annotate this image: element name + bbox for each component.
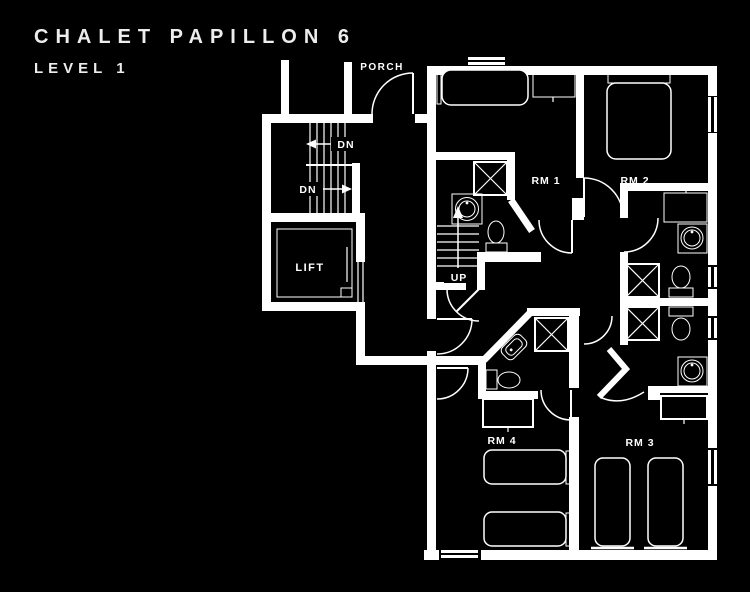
lift-label: LIFT xyxy=(295,262,324,274)
rm1-bed xyxy=(437,70,528,105)
wardrobe-rm4 xyxy=(483,399,533,432)
rm4-beds xyxy=(484,450,570,546)
toilet-rm1-ensuite xyxy=(486,221,507,252)
toilet-rm4-ensuite xyxy=(486,370,520,389)
basin-rm3-ensuite xyxy=(678,357,707,386)
page-title: CHALET PAPILLON 6 xyxy=(34,26,356,49)
rm2-bed xyxy=(607,73,671,159)
floor-plan: DN DN LIFT UP xyxy=(0,0,750,592)
shower-rm4-ensuite xyxy=(535,318,568,351)
rm1-label: RM 1 xyxy=(531,175,560,187)
page-subtitle: LEVEL 1 xyxy=(34,60,130,77)
basin-stair-landing xyxy=(452,194,482,224)
rm2-label: RM 2 xyxy=(620,175,649,187)
toilet-rm3-ensuite xyxy=(669,307,693,340)
rm3-label: RM 3 xyxy=(625,437,654,449)
stairs-down-arrow-icon xyxy=(322,185,352,194)
floor-plan-page: DN DN LIFT UP xyxy=(0,0,750,592)
stairs-down-label-1: DN xyxy=(337,139,354,151)
shower-rm1-ensuite xyxy=(474,162,507,195)
stairs-down: DN DN xyxy=(293,123,361,213)
shower-rm3-ensuite xyxy=(626,307,659,340)
shower-rm2-ensuite xyxy=(626,264,659,297)
wardrobe-rm3 xyxy=(661,396,707,424)
lift: LIFT xyxy=(277,229,363,302)
toilet-rm2-ensuite xyxy=(669,266,693,297)
stairs-up: UP xyxy=(437,206,479,284)
stairs-down-label-2: DN xyxy=(299,184,316,196)
rm4-label: RM 4 xyxy=(487,435,516,447)
vanity-rm2-ensuite xyxy=(664,188,707,253)
angled-wall xyxy=(599,349,626,397)
porch-label: PORCH xyxy=(360,62,404,73)
rm1-nightstand xyxy=(533,73,575,102)
rm3-beds xyxy=(591,458,687,548)
stairs-up-label: UP xyxy=(451,272,468,284)
